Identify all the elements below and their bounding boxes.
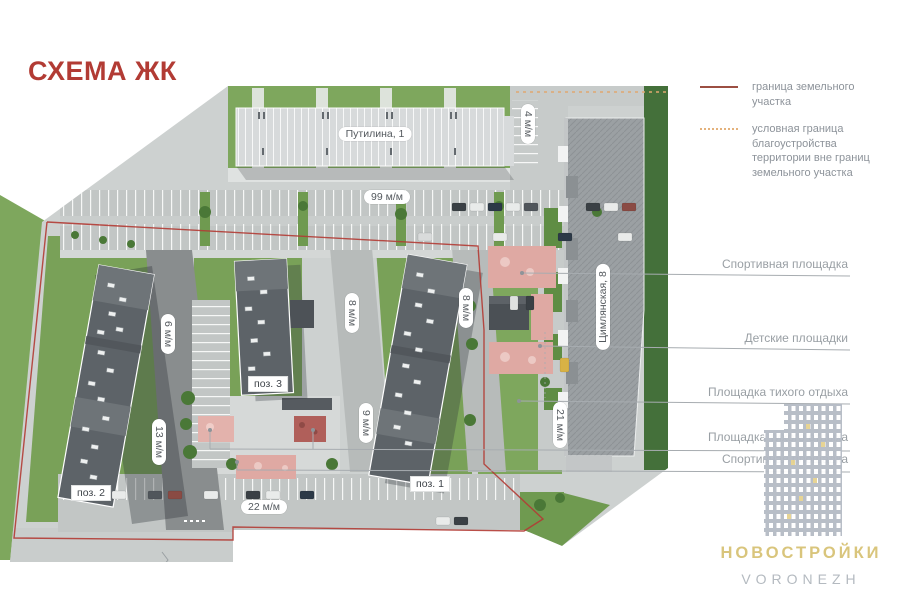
legend-item-conditional-boundary: условная граница благоустройства террито… [700,122,895,181]
parking-label-4: 4 м/м [521,104,535,144]
parking-label-6: 6 м/м [161,314,175,354]
position-label-2: поз. 2 [71,485,111,501]
dotted-line-swatch [700,128,738,130]
grass-east-strip [644,86,668,470]
position-label-3: поз. 3 [248,376,288,392]
parking-label-22: 22 м/м [241,500,287,514]
parking-label-13: 13 м/м [152,419,166,465]
callout-sport-area-2: Спортивная площадка [722,452,848,466]
legend-item-boundary: граница земельного участка [700,80,895,110]
legend-label: граница земельного участка [752,80,894,110]
legend-label: условная граница благоустройства террито… [752,122,894,181]
parking-label-9: 9 м/м [359,403,373,443]
parking-label-99: 99 м/м [364,190,410,204]
callout-quiet-rest-area-1: Площадка тихого отдыха [708,385,848,399]
parking-label-21: 21 м/м [553,402,567,448]
callout-kids-playgrounds: Детские площадки [744,331,848,345]
parking-label-8b: 8 м/м [459,288,473,328]
position-label-1: поз. 1 [410,476,450,492]
solid-line-swatch [700,86,738,88]
legend: граница земельного участка условная гран… [700,80,895,193]
callout-sport-area-1: Спортивная площадка [722,257,848,271]
site-plan-page: СХЕМА ЖК граница земельного участка усло… [0,0,902,600]
building-label-putilina: Путилина, 1 [339,127,412,141]
page-title: СХЕМА ЖК [28,56,177,87]
building-label-tsimlyanskaya: Цимлянская, 8 [596,264,610,350]
callout-quiet-rest-area-2: Площадка тихого отдыха [708,430,848,444]
building-putilina [236,108,514,180]
parking-label-8a: 8 м/м [345,293,359,333]
